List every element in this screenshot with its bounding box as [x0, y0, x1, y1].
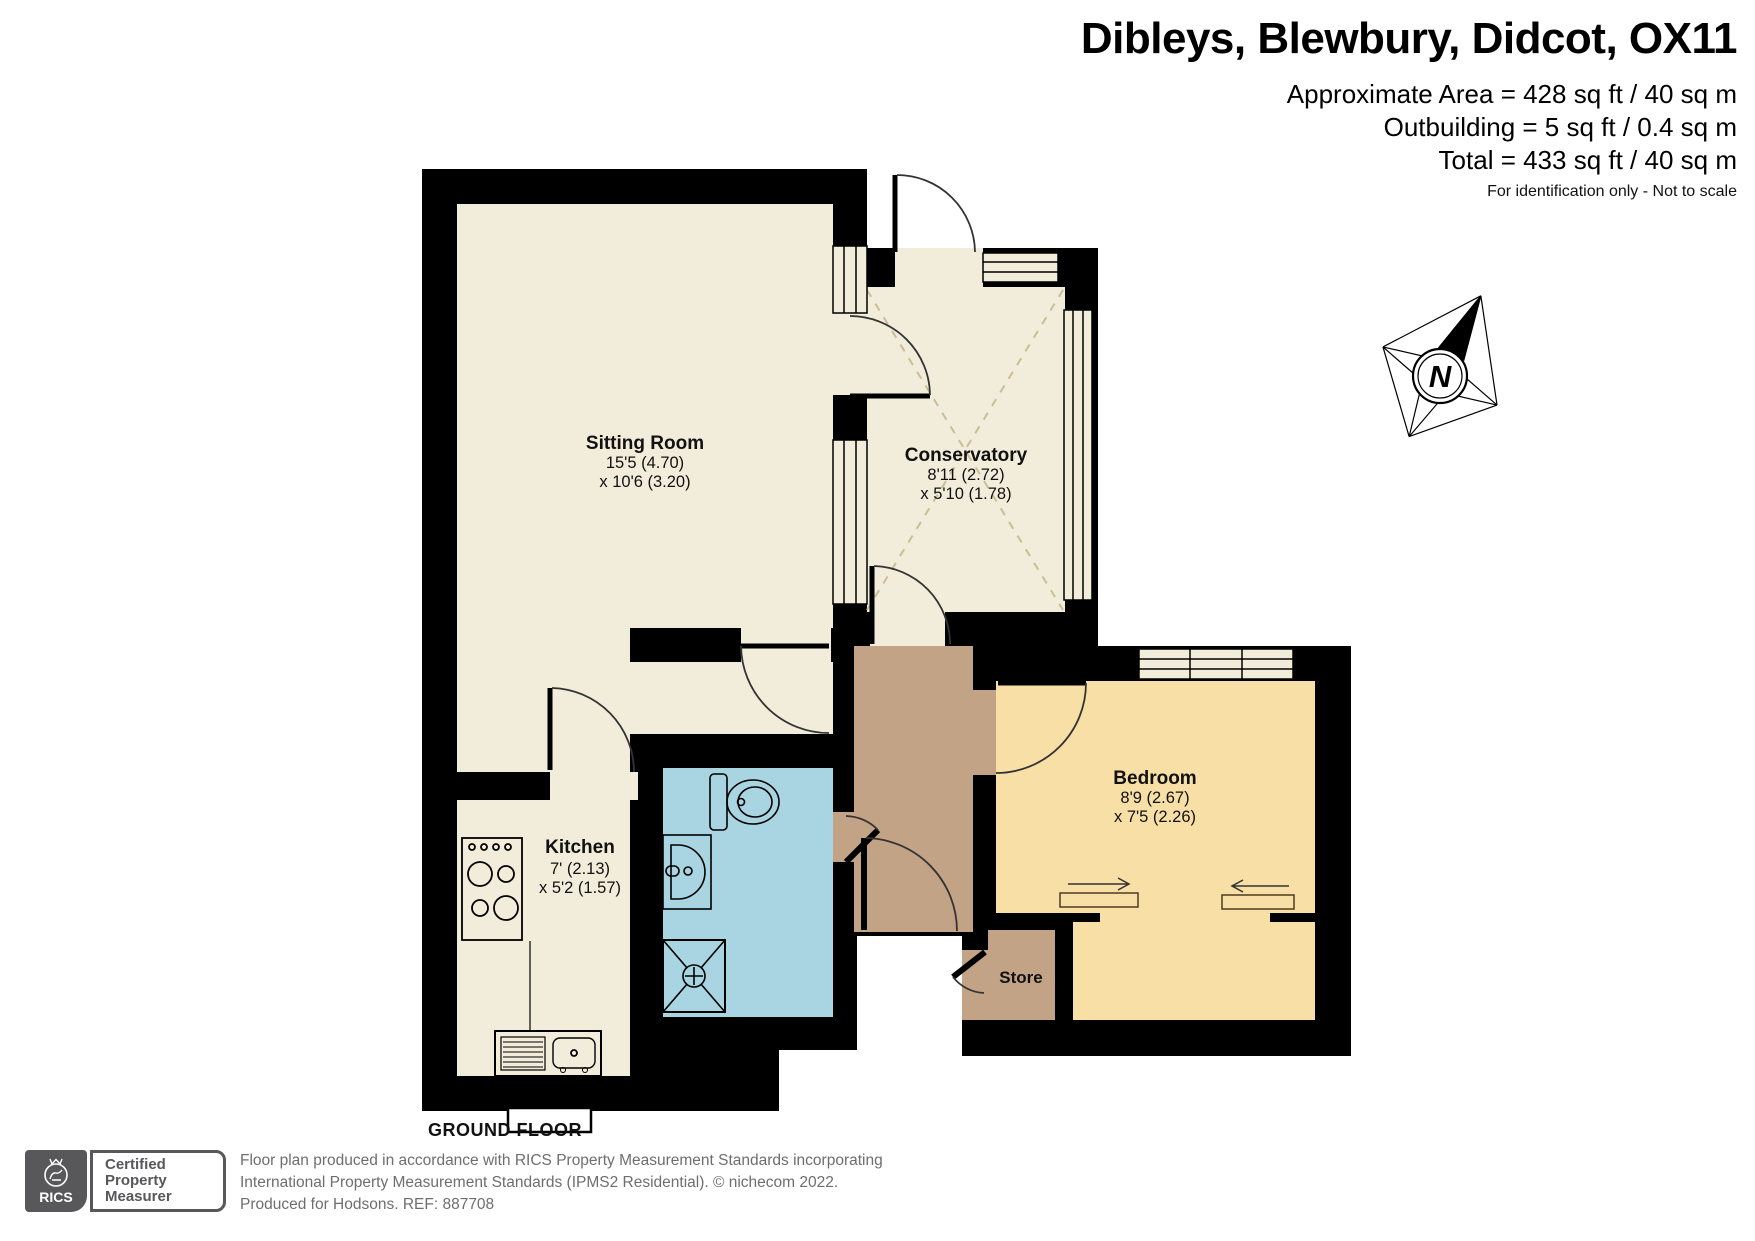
hallway: [833, 646, 996, 932]
disclaimer-line: Floor plan produced in accordance with R…: [240, 1150, 883, 1172]
bedroom-dim2: x 7'5 (2.26): [1114, 808, 1196, 826]
exterior-notch: [779, 1050, 867, 1111]
compass-north-letter: N: [1429, 359, 1452, 394]
lion-icon: [50, 1170, 62, 1180]
window: [833, 440, 867, 604]
floor-title: GROUND FLOOR: [428, 1120, 582, 1140]
compass-rose: N: [1352, 267, 1538, 466]
lion-circle-icon: [45, 1164, 67, 1186]
floorplan-page: Dibleys, Blewbury, Didcot, OX11 Approxim…: [0, 0, 1755, 1241]
badge-line: Certified: [105, 1157, 223, 1173]
window: [983, 253, 1058, 282]
bedroom-dim1: 8'9 (2.67): [1120, 789, 1189, 807]
disclaimer-line: Produced for Hodsons. REF: 887708: [240, 1194, 883, 1216]
certified-property-measurer-badge: Certified Property Measurer: [90, 1150, 226, 1212]
window: [1064, 310, 1092, 600]
badge-line: Measurer: [105, 1189, 223, 1205]
sitting-room-dim2: x 10'6 (3.20): [599, 473, 690, 491]
rics-logo: RICS: [25, 1150, 87, 1212]
disclaimer-line: International Property Measurement Stand…: [240, 1172, 883, 1194]
footer-disclaimer: Floor plan produced in accordance with R…: [240, 1150, 883, 1216]
conservatory-label: Conservatory: [905, 445, 1028, 466]
entrance-recess: [857, 936, 962, 1056]
kitchen-dim1: 7' (2.13): [550, 860, 610, 878]
sitting-room-label: Sitting Room: [586, 433, 704, 454]
kitchen-label: Kitchen: [545, 837, 615, 858]
bedroom-label: Bedroom: [1113, 768, 1196, 789]
floorplan-drawing: N Sitting Room 15'5 (4.70) x 10'6 (3.20)…: [0, 0, 1755, 1241]
rics-wordmark: RICS: [39, 1189, 72, 1205]
footer: RICS Certified Property Measurer Floor p…: [25, 1150, 883, 1216]
window: [1139, 649, 1293, 679]
conservatory-dim2: x 5'10 (1.78): [920, 485, 1011, 503]
window: [833, 246, 867, 313]
sitting-room-dim1: 15'5 (4.70): [606, 454, 684, 472]
kitchen-dim2: x 5'2 (1.57): [539, 879, 621, 897]
conservatory-dim1: 8'11 (2.72): [927, 466, 1004, 484]
badge-line: Property: [105, 1173, 223, 1189]
door-conservatory-entrance: [895, 175, 975, 252]
store-label: Store: [999, 968, 1042, 987]
rics-crest: RICS: [25, 1150, 87, 1212]
hob: [462, 838, 522, 940]
kitchen-sink-unit: [495, 1031, 601, 1076]
